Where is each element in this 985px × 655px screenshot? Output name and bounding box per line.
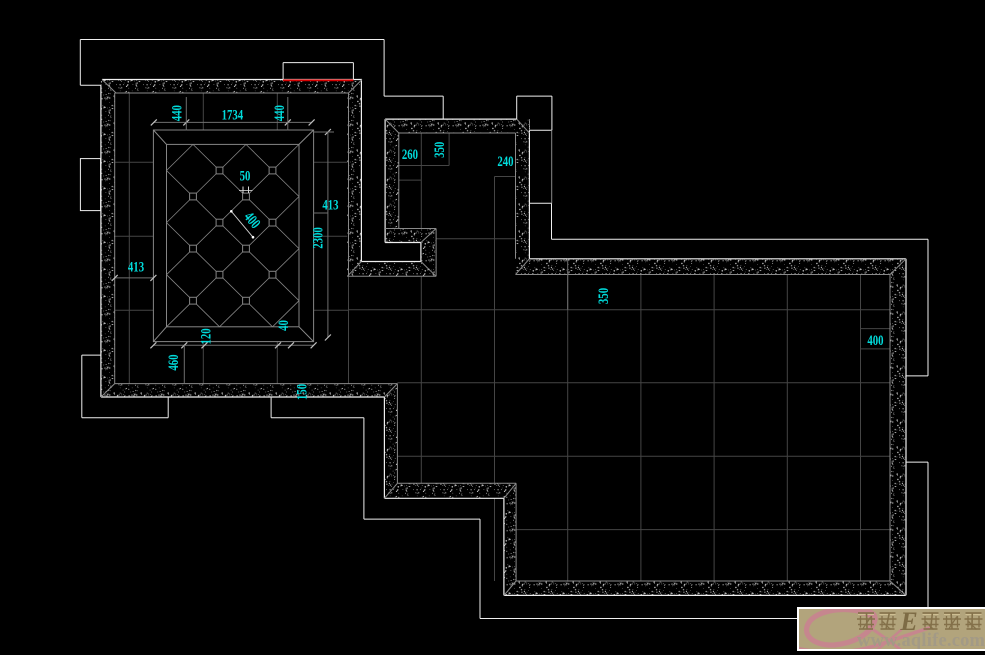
- svg-text:120: 120: [197, 328, 214, 345]
- svg-text:240: 240: [497, 152, 514, 169]
- svg-text:40: 40: [274, 320, 291, 331]
- svg-text:50: 50: [240, 167, 251, 184]
- svg-text:440: 440: [270, 105, 287, 122]
- svg-text:260: 260: [402, 145, 419, 162]
- svg-text:400: 400: [867, 331, 884, 348]
- svg-text:www.aqlife.com: www.aqlife.com: [857, 631, 985, 651]
- svg-text:440: 440: [168, 105, 185, 122]
- svg-text:2300: 2300: [309, 227, 326, 249]
- svg-text:460: 460: [164, 354, 181, 371]
- svg-text:413: 413: [322, 195, 339, 212]
- svg-text:1734: 1734: [222, 106, 244, 123]
- svg-text:350: 350: [594, 288, 611, 305]
- svg-text:413: 413: [128, 258, 145, 275]
- svg-text:350: 350: [430, 141, 447, 158]
- svg-text:150: 150: [293, 384, 310, 401]
